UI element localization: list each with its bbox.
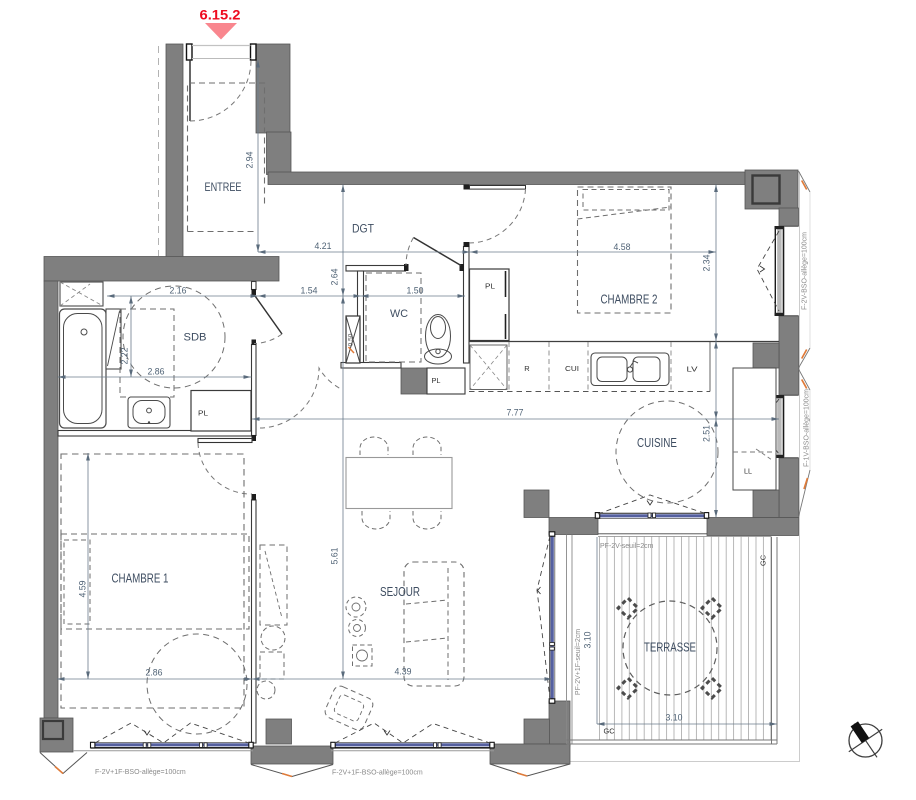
svg-text:PF-2V-seuil=2cm: PF-2V-seuil=2cm	[600, 543, 654, 550]
svg-text:0.50: 0.50	[348, 333, 355, 346]
svg-text:2.16: 2.16	[170, 286, 187, 297]
svg-text:1.54: 1.54	[301, 286, 318, 297]
svg-text:LV: LV	[687, 365, 698, 374]
svg-text:GC: GC	[604, 729, 615, 736]
svg-text:2.94: 2.94	[245, 152, 256, 169]
svg-text:R: R	[524, 364, 530, 373]
svg-text:PL: PL	[432, 378, 441, 385]
svg-text:2.34: 2.34	[702, 255, 713, 272]
svg-text:ENTREE: ENTREE	[205, 180, 242, 194]
svg-text:PL: PL	[485, 282, 495, 291]
svg-text:2.86: 2.86	[148, 367, 165, 378]
svg-text:DGT: DGT	[352, 224, 374, 236]
svg-text:5.61: 5.61	[330, 548, 341, 565]
svg-text:7.77: 7.77	[507, 408, 524, 419]
svg-text:LL: LL	[744, 469, 752, 476]
svg-text:F-2V+1F-BSO-allège=100cm: F-2V+1F-BSO-allège=100cm	[95, 769, 186, 776]
svg-text:4.58: 4.58	[614, 242, 631, 253]
svg-text:CUISINE: CUISINE	[637, 436, 677, 450]
svg-text:2.86: 2.86	[146, 668, 163, 679]
svg-text:CHAMBRE 2: CHAMBRE 2	[601, 292, 658, 307]
svg-text:3.10: 3.10	[666, 713, 683, 724]
svg-text:2.51: 2.51	[702, 425, 713, 442]
svg-text:4.21: 4.21	[315, 241, 332, 252]
svg-text:CHAMBRE 1: CHAMBRE 1	[112, 571, 169, 586]
svg-text:PL: PL	[198, 409, 208, 418]
svg-text:WC: WC	[390, 308, 408, 320]
svg-text:2.22: 2.22	[120, 348, 131, 365]
svg-text:3.10: 3.10	[583, 632, 594, 649]
svg-text:CUI: CUI	[565, 364, 579, 373]
svg-text:6.15.2: 6.15.2	[200, 8, 241, 23]
svg-text:PF-2V+1F-seuil=2cm: PF-2V+1F-seuil=2cm	[575, 629, 582, 695]
svg-text:2.64: 2.64	[330, 269, 341, 286]
svg-text:GC: GC	[761, 555, 768, 566]
svg-text:SEJOUR: SEJOUR	[380, 585, 420, 599]
svg-text:TERRASSE: TERRASSE	[644, 641, 696, 655]
svg-text:F-2V+1F-BSO-allège=100cm: F-2V+1F-BSO-allège=100cm	[332, 770, 423, 777]
svg-text:4.39: 4.39	[395, 667, 412, 678]
svg-text:F-2V-BSO-allège=100cm: F-2V-BSO-allège=100cm	[802, 232, 809, 310]
svg-text:1.50: 1.50	[407, 286, 424, 297]
svg-text:SDB: SDB	[184, 332, 207, 344]
svg-text:F-1V-BSO-allège=100cm: F-1V-BSO-allège=100cm	[804, 389, 811, 467]
svg-text:4.59: 4.59	[78, 581, 89, 598]
